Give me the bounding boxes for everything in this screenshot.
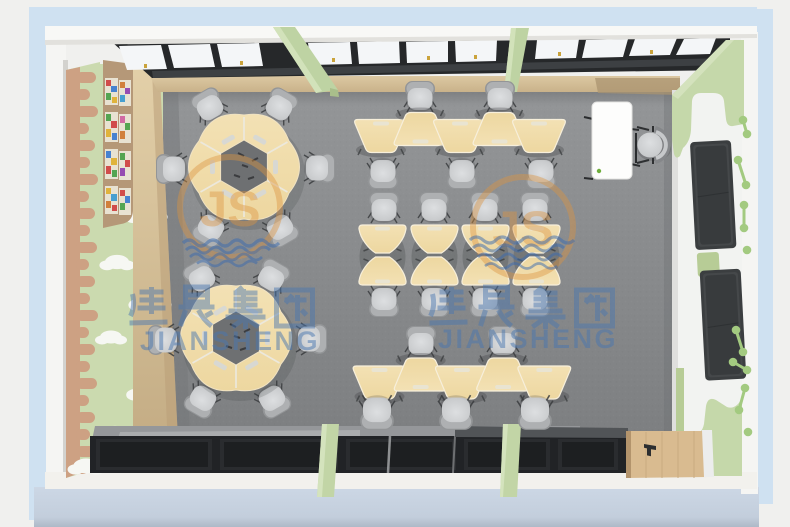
svg-text:JIANSHENG: JIANSHENG	[140, 326, 320, 356]
svg-text:JIANSHENG: JIANSHENG	[438, 324, 618, 354]
svg-text:JS: JS	[199, 181, 260, 237]
